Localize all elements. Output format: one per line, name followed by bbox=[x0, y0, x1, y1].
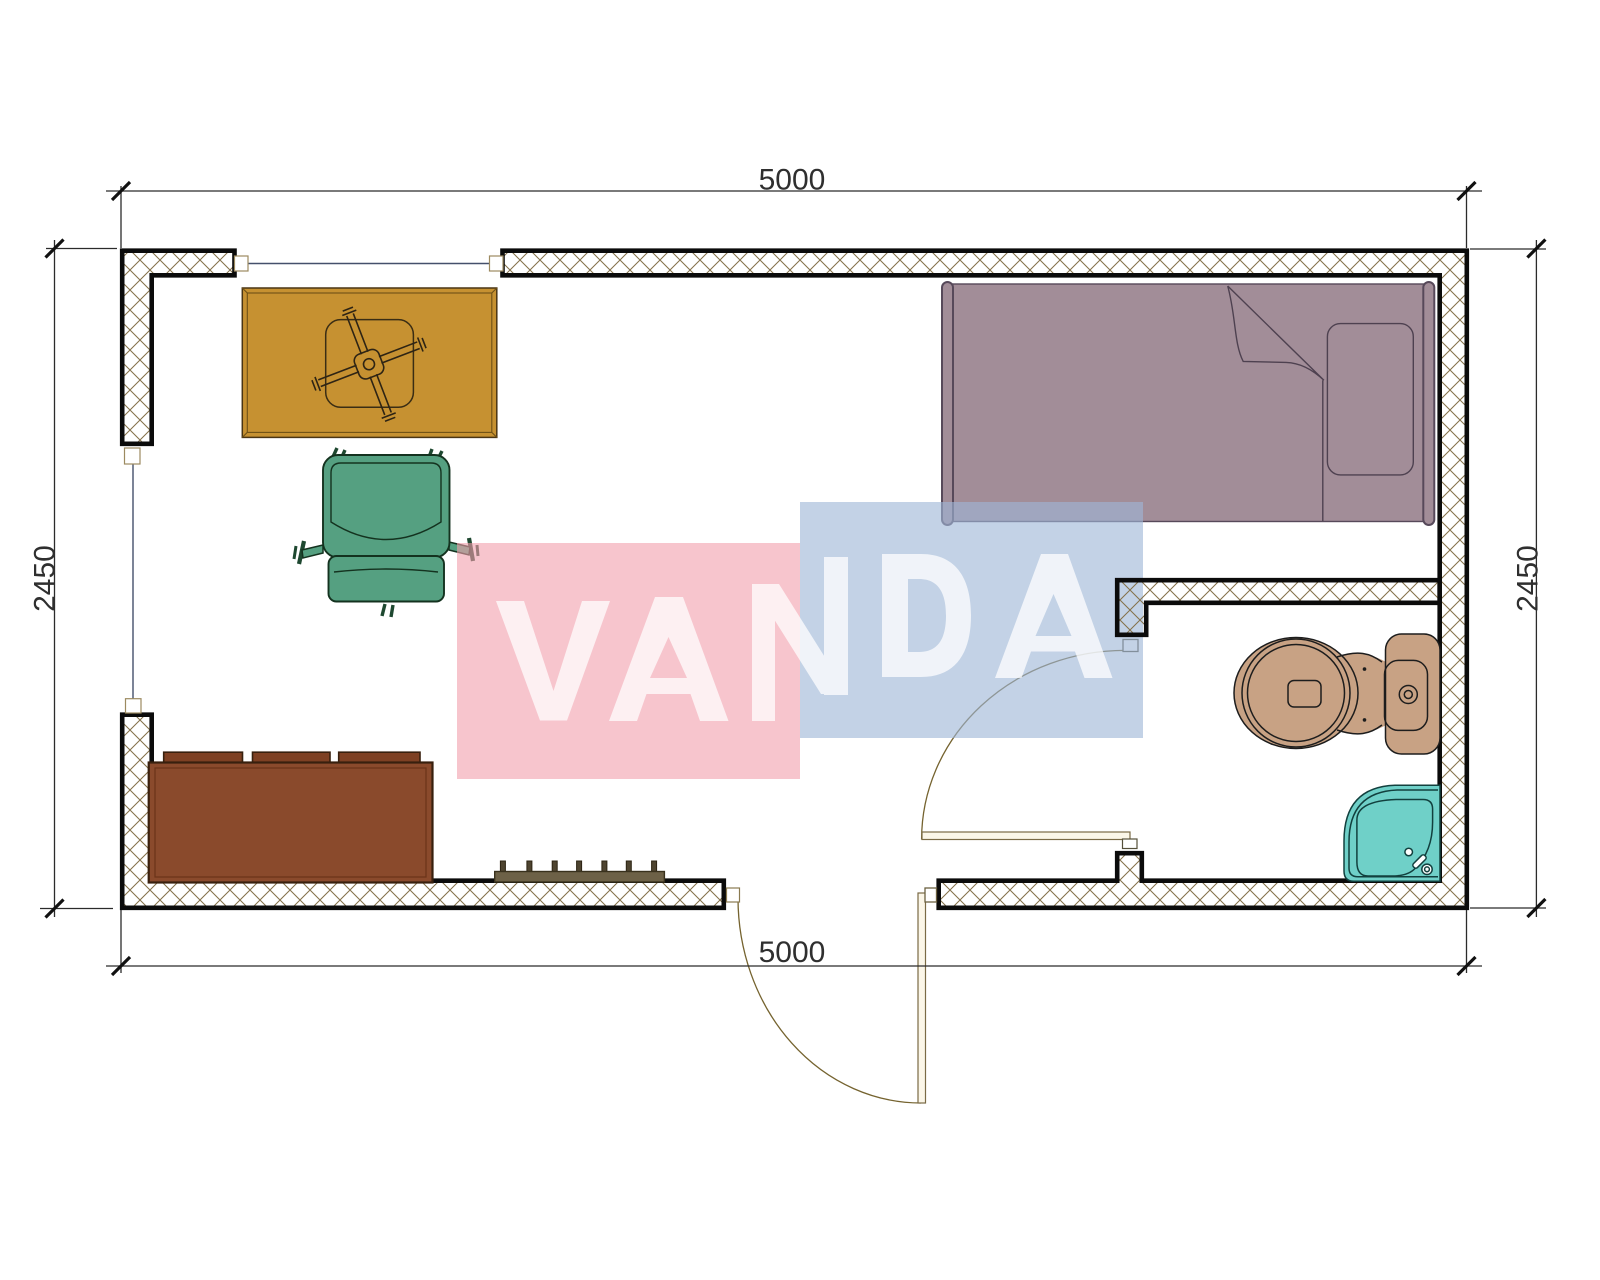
svg-text:2450: 2450 bbox=[1512, 545, 1545, 612]
svg-text:2450: 2450 bbox=[29, 545, 62, 612]
svg-text:5000: 5000 bbox=[759, 936, 826, 969]
svg-text:5000: 5000 bbox=[759, 164, 826, 197]
